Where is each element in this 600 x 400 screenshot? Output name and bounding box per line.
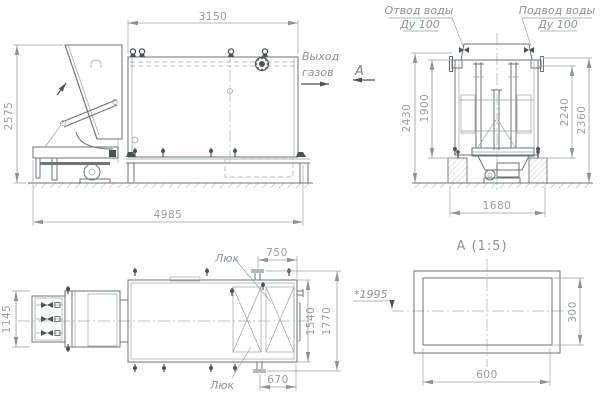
dim-text-3150: 3150 bbox=[199, 11, 228, 23]
view-a-label: А bbox=[354, 64, 364, 79]
ground-line-side bbox=[28, 183, 313, 188]
outlet-label-line2: Ду 100 bbox=[399, 18, 440, 31]
inlet-label-line2: Ду 100 bbox=[537, 18, 578, 31]
dim-text-670: 670 bbox=[267, 374, 289, 386]
dim-text-1900: 1900 bbox=[419, 94, 431, 123]
gas-outlet-note: Выход газов bbox=[301, 50, 339, 84]
dim-text-1540: 1540 bbox=[305, 307, 317, 336]
dim-text-2575: 2575 bbox=[3, 102, 15, 131]
drawing-canvas: 3150 2575 4985 Выход газов А bbox=[0, 0, 600, 400]
dim-text-300: 300 bbox=[567, 301, 579, 323]
hatch-label-top-text: Люк bbox=[214, 252, 240, 265]
dim-text-750: 750 bbox=[266, 247, 288, 259]
dim-text-1770: 1770 bbox=[321, 307, 333, 336]
dim-text-1995: *1995 bbox=[354, 288, 388, 301]
dim-text-1680: 1680 bbox=[483, 200, 512, 212]
flange-port bbox=[256, 58, 269, 71]
dim-text-1145: 1145 bbox=[1, 305, 13, 334]
ground-line-end bbox=[412, 183, 593, 188]
technical-drawing: 3150 2575 4985 Выход газов А bbox=[0, 0, 600, 400]
gas-note-line1: Выход bbox=[302, 50, 339, 63]
dim-text-2360: 2360 bbox=[576, 106, 588, 135]
dim-text-2430: 2430 bbox=[401, 104, 413, 133]
dim-text-4985: 4985 bbox=[154, 209, 183, 221]
dim-text-2240: 2240 bbox=[559, 98, 571, 127]
inlet-label-line1: Подвод воды bbox=[519, 4, 596, 17]
outlet-label-line1: Отвод воды bbox=[385, 4, 454, 17]
dim-text-600: 600 bbox=[476, 369, 498, 381]
gas-note-line2: газов bbox=[302, 66, 334, 79]
section-title: А (1:5) bbox=[456, 239, 507, 254]
hatch-label-bottom-text: Люк bbox=[209, 379, 235, 392]
